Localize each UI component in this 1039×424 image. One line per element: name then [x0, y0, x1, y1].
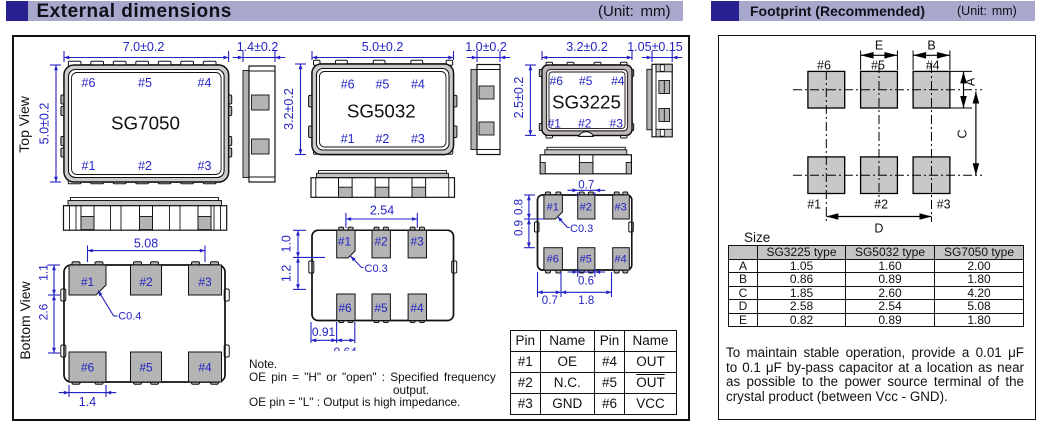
svg-text:#3: #3 — [411, 132, 425, 146]
svg-text:#5: #5 — [871, 58, 885, 72]
svg-text:2.54: 2.54 — [370, 204, 394, 218]
svg-text:#2: #2 — [580, 202, 592, 214]
svg-text:#4: #4 — [614, 254, 626, 266]
svg-text:0.9: 0.9 — [514, 220, 526, 236]
svg-text:C0.4: C0.4 — [118, 311, 141, 323]
svg-text:#4: #4 — [198, 76, 212, 90]
svg-text:#4: #4 — [611, 74, 625, 88]
svg-text:#5: #5 — [139, 361, 153, 375]
svg-text:#5: #5 — [138, 76, 152, 90]
svg-text:0.8: 0.8 — [514, 199, 526, 215]
svg-text:#4: #4 — [198, 361, 212, 375]
svg-text:C: C — [956, 129, 970, 138]
svg-text:#2: #2 — [138, 159, 152, 173]
svg-text:#1: #1 — [341, 132, 355, 146]
svg-text:#6: #6 — [82, 76, 96, 90]
svg-text:7.0±0.2: 7.0±0.2 — [123, 40, 165, 54]
svg-text:1.2: 1.2 — [280, 265, 294, 282]
svg-text:0.91: 0.91 — [312, 325, 336, 339]
svg-text:#3: #3 — [614, 202, 626, 214]
svg-text:D: D — [874, 222, 883, 236]
svg-text:1.0: 1.0 — [280, 235, 294, 252]
svg-text:0.7: 0.7 — [542, 295, 558, 307]
svg-text:#5: #5 — [579, 74, 593, 88]
svg-text:SG3225: SG3225 — [552, 91, 621, 112]
svg-text:1.0±0.2: 1.0±0.2 — [465, 40, 507, 54]
svg-text:#6: #6 — [341, 78, 355, 92]
svg-text:#5: #5 — [580, 254, 592, 266]
svg-text:#6: #6 — [817, 58, 831, 72]
svg-text:#6: #6 — [547, 254, 559, 266]
svg-text:1.4±0.2: 1.4±0.2 — [237, 40, 279, 54]
svg-text:A: A — [964, 77, 978, 86]
svg-text:5.08: 5.08 — [134, 237, 158, 251]
svg-text:#1: #1 — [81, 275, 95, 289]
svg-text:#4: #4 — [411, 78, 425, 92]
svg-text:5.0±0.2: 5.0±0.2 — [38, 103, 52, 145]
svg-text:Bottom View: Bottom View — [17, 280, 33, 359]
svg-text:#2: #2 — [374, 235, 388, 249]
svg-text:2.6: 2.6 — [37, 303, 51, 320]
svg-text:#1: #1 — [547, 202, 559, 214]
svg-text:#2: #2 — [874, 198, 888, 212]
svg-text:Top View: Top View — [16, 95, 32, 152]
svg-text:#2: #2 — [139, 275, 153, 289]
svg-text:#5: #5 — [374, 301, 388, 315]
svg-text:1.1: 1.1 — [37, 264, 51, 281]
svg-text:5.0±0.2: 5.0±0.2 — [362, 40, 404, 54]
svg-text:#1: #1 — [807, 198, 821, 212]
svg-text:#2: #2 — [375, 132, 389, 146]
svg-text:#2: #2 — [578, 117, 592, 131]
svg-text:2.5±0.2: 2.5±0.2 — [512, 77, 526, 119]
svg-text:#3: #3 — [198, 275, 212, 289]
svg-text:#6: #6 — [81, 361, 95, 375]
svg-text:#1: #1 — [338, 235, 352, 249]
svg-text:#5: #5 — [375, 78, 389, 92]
svg-text:#3: #3 — [410, 235, 424, 249]
svg-text:#3: #3 — [937, 198, 951, 212]
svg-text:C0.3: C0.3 — [570, 223, 593, 235]
svg-text:SG7050: SG7050 — [111, 113, 180, 134]
svg-text:3.2±0.2: 3.2±0.2 — [282, 88, 296, 130]
svg-text:3.2±0.2: 3.2±0.2 — [566, 40, 608, 54]
svg-text:1.8: 1.8 — [578, 295, 594, 307]
svg-text:0.7: 0.7 — [578, 179, 594, 191]
svg-text:0.6: 0.6 — [578, 275, 594, 287]
svg-text:#4: #4 — [926, 58, 940, 72]
svg-text:E: E — [875, 39, 883, 53]
svg-text:1.4: 1.4 — [79, 395, 96, 409]
svg-text:#1: #1 — [548, 117, 562, 131]
svg-text:#6: #6 — [338, 301, 352, 315]
svg-text:C0.3: C0.3 — [365, 263, 388, 275]
svg-text:#3: #3 — [198, 159, 212, 173]
svg-text:#3: #3 — [610, 117, 624, 131]
svg-text:SG5032: SG5032 — [347, 101, 416, 122]
svg-text:#6: #6 — [550, 74, 564, 88]
svg-text:#1: #1 — [82, 159, 96, 173]
svg-text:1.05±0.15: 1.05±0.15 — [627, 40, 683, 54]
svg-text:#4: #4 — [410, 301, 424, 315]
svg-text:B: B — [927, 39, 935, 53]
